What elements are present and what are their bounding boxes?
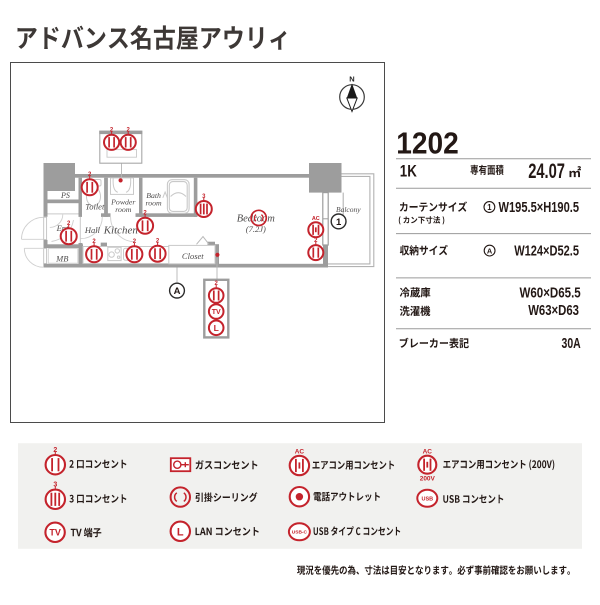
svg-text:L: L [214, 323, 219, 333]
svg-text:PS: PS [60, 191, 70, 200]
svg-text:AC: AC [312, 216, 320, 222]
svg-text:L: L [177, 526, 184, 538]
svg-text:A: A [487, 246, 493, 255]
svg-text:30A: 30A [562, 335, 581, 352]
svg-text:1K: 1K [400, 162, 418, 181]
svg-text:Hall: Hall [84, 225, 101, 235]
svg-text:3: 3 [53, 481, 57, 488]
svg-text:AC: AC [295, 449, 305, 456]
svg-text:2: 2 [53, 447, 57, 454]
svg-text:room: room [146, 199, 163, 208]
svg-text:1: 1 [487, 203, 492, 212]
svg-text:USB: USB [421, 496, 433, 502]
svg-text:Balcony: Balcony [336, 205, 361, 214]
svg-text:AC: AC [423, 449, 433, 456]
svg-text:N: N [349, 75, 354, 84]
svg-text:MB: MB [55, 253, 68, 263]
svg-text:200V: 200V [420, 476, 436, 483]
svg-text:Kitchen: Kitchen [103, 224, 139, 236]
svg-text:W63×D63: W63×D63 [528, 302, 579, 319]
svg-text:1: 1 [336, 217, 342, 228]
svg-text:room: room [115, 205, 132, 214]
svg-text:Toilet: Toilet [85, 202, 105, 212]
svg-text:TV: TV [212, 309, 221, 316]
svg-text:USB-C: USB-C [292, 530, 308, 536]
svg-text:TV: TV [49, 528, 61, 538]
svg-text:W60×D65.5: W60×D65.5 [520, 285, 581, 302]
svg-text:W124×D52.5: W124×D52.5 [514, 243, 579, 260]
svg-text:1202: 1202 [396, 126, 459, 161]
svg-text:24.07: 24.07 [528, 159, 565, 183]
svg-text:Closet: Closet [182, 251, 204, 261]
svg-text:W195.5×H190.5: W195.5×H190.5 [499, 199, 580, 216]
svg-text:A: A [174, 286, 181, 297]
